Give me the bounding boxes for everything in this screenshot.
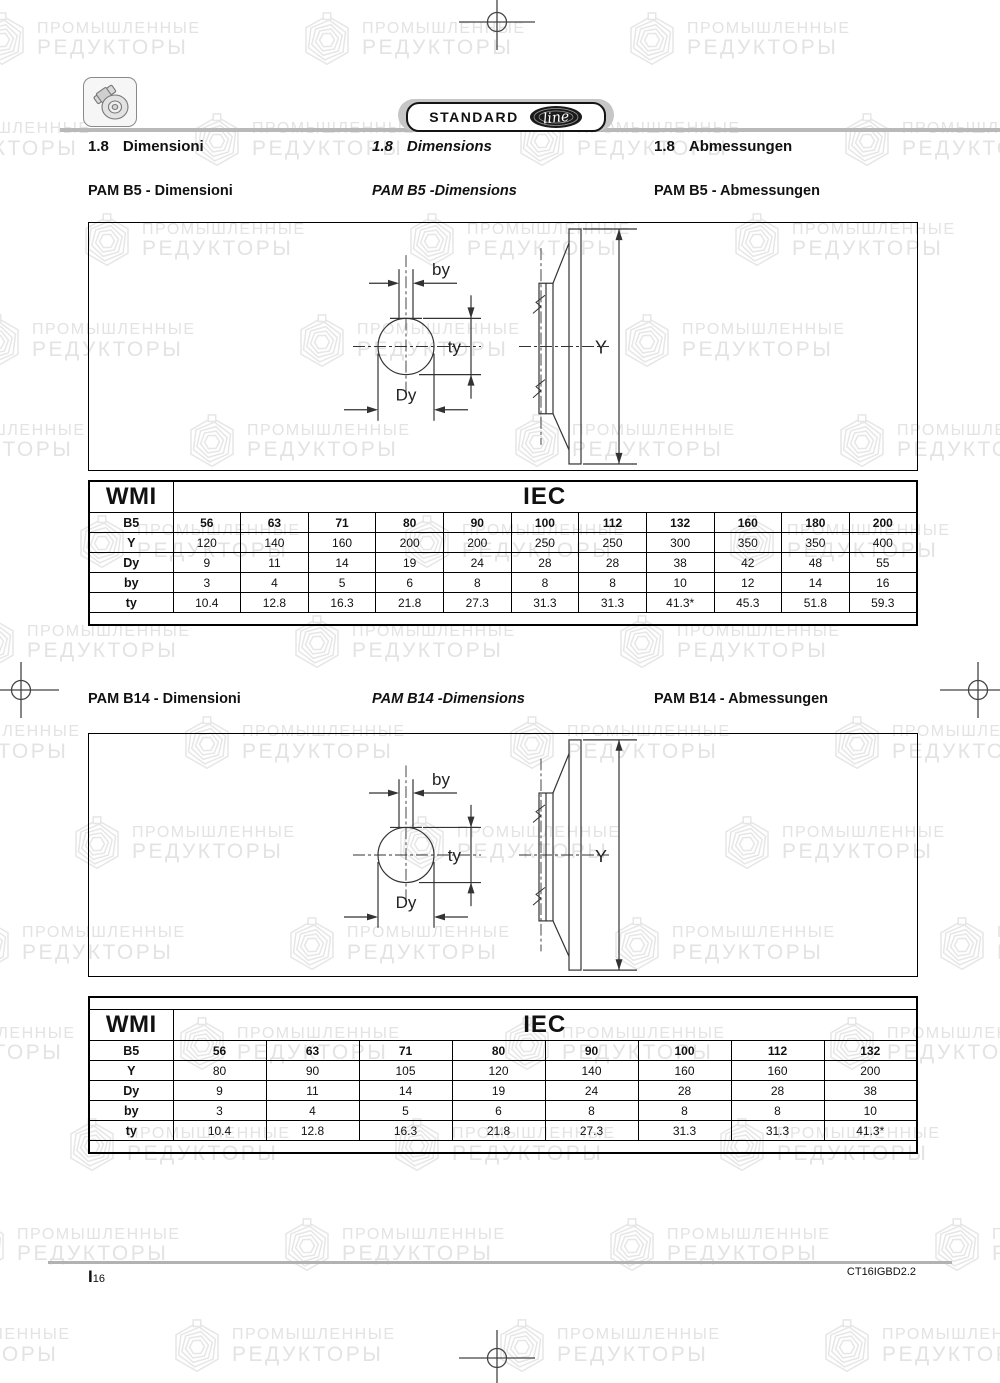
value-cell: 31.3	[511, 593, 579, 613]
row-label: ty	[89, 593, 173, 613]
watermark-line1: ПРОМЫШЛЕННЫЕ	[667, 1227, 831, 1244]
value-cell: 38	[824, 1081, 917, 1101]
row-label: Dy	[89, 1081, 173, 1101]
dim-label-by: by	[432, 260, 450, 279]
hexagon-swirl-icon	[299, 12, 355, 68]
size-cell: 112	[731, 1041, 824, 1061]
hexagon-swirl-icon	[0, 314, 25, 370]
flange-drawing: by ty Dy Y	[89, 223, 917, 470]
size-cell: 71	[359, 1041, 452, 1061]
table-row: ty10.412.816.321.827.331.331.341.3*45.35…	[89, 593, 917, 613]
value-cell: 8	[731, 1101, 824, 1121]
value-cell: 55	[849, 553, 917, 573]
value-cell: 350	[714, 533, 782, 553]
watermark-line1: ПРОМЫШЛЕННЫЕ	[37, 21, 201, 38]
value-cell: 24	[444, 553, 512, 573]
value-cell: 105	[359, 1061, 452, 1081]
watermark: ПРОМЫШЛЕННЫЕРЕДУКТОРЫ	[0, 414, 86, 470]
size-cell: 56	[173, 1041, 266, 1061]
table-band	[89, 997, 917, 1010]
value-cell: 160	[638, 1061, 731, 1081]
value-cell: 200	[824, 1061, 917, 1081]
size-cell: 71	[308, 513, 376, 533]
dim-label-ty: ty	[448, 337, 462, 356]
value-cell: 6	[376, 573, 444, 593]
value-cell: 350	[782, 533, 850, 553]
value-cell: 200	[444, 533, 512, 553]
dim-label-y: Y	[595, 337, 607, 357]
pam-b5-figure: by ty Dy Y	[88, 222, 918, 471]
dim-label-y: Y	[595, 846, 607, 866]
value-cell: 9	[173, 553, 241, 573]
brand-logo	[83, 77, 137, 127]
watermark-line2: РЕДУКТОРЫ	[902, 138, 1000, 160]
registration-mark-icon	[457, 0, 537, 54]
table-band	[89, 1141, 917, 1154]
watermark-line2: РЕДУКТОРЫ	[0, 741, 81, 763]
value-cell: 300	[646, 533, 714, 553]
size-cell: 90	[545, 1041, 638, 1061]
value-cell: 120	[173, 533, 241, 553]
value-cell: 42	[714, 553, 782, 573]
value-cell: 28	[579, 553, 647, 573]
size-cell: 200	[849, 513, 917, 533]
size-cell: 63	[266, 1041, 359, 1061]
hexagon-swirl-icon	[0, 1218, 10, 1274]
value-cell: 27.3	[444, 593, 512, 613]
size-cell: 160	[714, 513, 782, 533]
heading-dimensions: 1.8Dimensions	[372, 138, 492, 155]
value-cell: 4	[241, 573, 309, 593]
table-row: Dy911141924282838	[89, 1081, 917, 1101]
value-cell: 4	[266, 1101, 359, 1121]
size-cell: 132	[824, 1041, 917, 1061]
size-cell: 100	[638, 1041, 731, 1061]
value-cell: 19	[376, 553, 444, 573]
badge-line-label: line	[542, 109, 570, 128]
value-cell: 160	[308, 533, 376, 553]
watermark-line1: ПРОМЫШЛЕННЫЕ	[677, 624, 841, 641]
caption-pam-b14-it: PAM B14 - Dimensioni	[88, 691, 241, 707]
watermark: ПРОМЫШЛЕННЫЕРЕДУКТОРЫ	[0, 113, 91, 169]
watermark-line2: РЕДУКТОРЫ	[37, 37, 201, 59]
value-cell: 16	[849, 573, 917, 593]
watermark: ПРОМЫШЛЕННЫЕРЕДУКТОРЫ	[169, 1319, 396, 1375]
table-row: by345688810	[89, 1101, 917, 1121]
badge-standard-label: STANDARD	[429, 109, 519, 125]
watermark-line1: ПРОМЫШЛЕННЫЕ	[352, 624, 516, 641]
table-row: Y8090105120140160160200	[89, 1061, 917, 1081]
value-cell: 5	[308, 573, 376, 593]
hexagon-swirl-icon	[929, 1218, 985, 1274]
heading-abmessungen: 1.8Abmessungen	[654, 138, 792, 155]
table-header-row: WMIIEC	[89, 1010, 917, 1041]
size-cell: 80	[376, 513, 444, 533]
watermark-line2: РЕДУКТОРЫ	[0, 138, 91, 160]
size-cell: 56	[173, 513, 241, 533]
watermark-line2: РЕДУКТОРЫ	[687, 37, 851, 59]
value-cell: 8	[444, 573, 512, 593]
watermark-line1: ПРОМЫШЛЕННЫЕ	[992, 1227, 1000, 1244]
row-label: by	[89, 573, 173, 593]
value-cell: 31.3	[579, 593, 647, 613]
value-cell: 5	[359, 1101, 452, 1121]
row-label: by	[89, 1101, 173, 1121]
worm-gear-icon	[88, 82, 132, 122]
watermark: ПРОМЫШЛЕННЫЕРЕДУКТОРЫ	[279, 1218, 506, 1274]
table-header-row: WMIIEC	[89, 481, 917, 513]
registration-mark-icon	[938, 658, 1000, 722]
value-cell: 90	[266, 1061, 359, 1081]
hexagon-swirl-icon	[279, 1218, 335, 1274]
value-cell: 21.8	[452, 1121, 545, 1141]
value-cell: 250	[511, 533, 579, 553]
value-cell: 28	[731, 1081, 824, 1101]
watermark-line2: РЕДУКТОРЫ	[557, 1344, 721, 1366]
caption-pam-b5-en: PAM B5 -Dimensions	[372, 183, 517, 199]
dim-label-by: by	[432, 770, 451, 789]
watermark-line2: РЕДУКТОРЫ	[352, 640, 516, 662]
size-cell: 90	[444, 513, 512, 533]
value-cell: 12	[714, 573, 782, 593]
value-cell: 140	[545, 1061, 638, 1081]
watermark-line2: РЕДУКТОРЫ	[232, 1344, 396, 1366]
pam-b5-table: WMIIECB55663718090100112132160180200Y120…	[88, 480, 918, 626]
value-cell: 38	[646, 553, 714, 573]
value-cell: 31.3	[731, 1121, 824, 1141]
hexagon-swirl-icon	[624, 12, 680, 68]
value-cell: 80	[173, 1061, 266, 1081]
watermark: ПРОМЫШЛЕННЫЕРЕДУКТОРЫ	[624, 12, 851, 68]
value-cell: 11	[266, 1081, 359, 1101]
hexagon-swirl-icon	[0, 917, 15, 973]
standard-cell: IEC	[173, 481, 917, 513]
watermark-line1: ПРОМЫШЛЕННЫЕ	[232, 1327, 396, 1344]
value-cell: 160	[731, 1061, 824, 1081]
value-cell: 28	[638, 1081, 731, 1101]
size-cell: 180	[782, 513, 850, 533]
size-cell: 63	[241, 513, 309, 533]
pam-b14-figure: by ty Dy Y	[88, 733, 918, 977]
watermark: ПРОМЫШЛЕННЫЕРЕДУКТОРЫ	[0, 1319, 71, 1375]
value-cell: 10.4	[173, 593, 241, 613]
value-cell: 3	[173, 573, 241, 593]
caption-pam-b14-de: PAM B14 - Abmessungen	[654, 691, 828, 707]
hexagon-swirl-icon	[819, 1319, 875, 1375]
caption-pam-b5-it: PAM B5 - Dimensioni	[88, 183, 233, 199]
pam-b14-table: WMIIECB55663718090100112132Y809010512014…	[88, 996, 918, 1154]
value-cell: 41.3*	[824, 1121, 917, 1141]
watermark-line1: ПРОМЫШЛЕННЫЕ	[0, 1026, 76, 1043]
row-label: B5	[89, 513, 173, 533]
value-cell: 31.3	[638, 1121, 731, 1141]
watermark: ПРОМЫШЛЕННЫЕРЕДУКТОРЫ	[929, 1218, 1000, 1274]
table-row: by345688810121416	[89, 573, 917, 593]
watermark-line2: РЕДУКТОРЫ	[0, 1042, 76, 1064]
document-code: CT16IGBD2.2	[716, 1266, 916, 1278]
row-label: B5	[89, 1041, 173, 1061]
size-cell: 80	[452, 1041, 545, 1061]
watermark-line1: ПРОМЫШЛЕННЫЕ	[0, 1327, 71, 1344]
value-cell: 10	[824, 1101, 917, 1121]
value-cell: 48	[782, 553, 850, 573]
row-label: ty	[89, 1121, 173, 1141]
watermark-line1: ПРОМЫШЛЕННЫЕ	[687, 21, 851, 38]
value-cell: 250	[579, 533, 647, 553]
watermark-line1: ПРОМЫШЛЕННЫЕ	[0, 724, 81, 741]
watermark: ПРОМЫШЛЕННЫЕРЕДУКТОРЫ	[0, 12, 201, 68]
watermark: ПРОМЫШЛЕННЫЕРЕДУКТОРЫ	[839, 113, 1000, 169]
value-cell: 21.8	[376, 593, 444, 613]
value-cell: 14	[308, 553, 376, 573]
value-cell: 19	[452, 1081, 545, 1101]
standard-cell: IEC	[173, 1010, 917, 1041]
hexagon-swirl-icon	[839, 113, 895, 169]
value-cell: 3	[173, 1101, 266, 1121]
row-label: Y	[89, 1061, 173, 1081]
brand-cell: WMI	[89, 1010, 173, 1041]
standard-line-badge: STANDARD line	[406, 102, 606, 132]
value-cell: 140	[241, 533, 309, 553]
flange-drawing: by ty Dy Y	[89, 734, 917, 976]
size-cell: 100	[511, 513, 579, 533]
hexagon-swirl-icon	[169, 1319, 225, 1375]
watermark-line2: РЕДУКТОРЫ	[677, 640, 841, 662]
watermark-line1: ПРОМЫШЛЕННЫЕ	[27, 624, 191, 641]
catalog-page: ПРОМЫШЛЕННЫЕРЕДУКТОРЫПРОМЫШЛЕННЫЕРЕДУКТО…	[0, 0, 1000, 1383]
watermark-line1: ПРОМЫШЛЕННЫЕ	[342, 1227, 506, 1244]
value-cell: 12.8	[241, 593, 309, 613]
hexagon-swirl-icon	[604, 1218, 660, 1274]
size-row: B55663718090100112132	[89, 1041, 917, 1061]
pam-b14-table-wrap: WMIIECB55663718090100112132Y809010512014…	[88, 996, 918, 1154]
watermark-line1: ПРОМЫШЛЕННЫЕ	[17, 1227, 181, 1244]
value-cell: 11	[241, 553, 309, 573]
value-cell: 14	[359, 1081, 452, 1101]
value-cell: 24	[545, 1081, 638, 1101]
value-cell: 6	[452, 1101, 545, 1121]
dim-label-ty: ty	[448, 846, 462, 865]
caption-pam-b14-en: PAM B14 -Dimensions	[372, 691, 525, 707]
watermark-line1: ПРОМЫШЛЕННЫЕ	[882, 1327, 1000, 1344]
row-label: Y	[89, 533, 173, 553]
table-band	[89, 613, 917, 626]
value-cell: 41.3*	[646, 593, 714, 613]
watermark: ПРОМЫШЛЕННЫЕРЕДУКТОРЫ	[819, 1319, 1000, 1375]
size-cell: 112	[579, 513, 647, 533]
heading-dimensioni: 1.8Dimensioni	[88, 138, 204, 155]
watermark: ПРОМЫШЛЕННЫЕРЕДУКТОРЫ	[0, 1218, 181, 1274]
value-cell: 16.3	[308, 593, 376, 613]
size-cell: 132	[646, 513, 714, 533]
watermark-line2: РЕДУКТОРЫ	[0, 439, 86, 461]
dim-label-dy: Dy	[396, 893, 417, 912]
value-cell: 10	[646, 573, 714, 593]
value-cell: 59.3	[849, 593, 917, 613]
value-cell: 120	[452, 1061, 545, 1081]
value-cell: 27.3	[545, 1121, 638, 1141]
page-reference: I16	[88, 1267, 105, 1287]
watermark: ПРОМЫШЛЕННЫЕРЕДУКТОРЫ	[934, 917, 1000, 973]
value-cell: 28	[511, 553, 579, 573]
table-row: Dy911141924282838424855	[89, 553, 917, 573]
value-cell: 8	[545, 1101, 638, 1121]
value-cell: 10.4	[173, 1121, 266, 1141]
watermark-line1: ПРОМЫШЛЕННЫЕ	[557, 1327, 721, 1344]
caption-pam-b5-de: PAM B5 - Abmessungen	[654, 183, 820, 199]
value-cell: 45.3	[714, 593, 782, 613]
value-cell: 12.8	[266, 1121, 359, 1141]
value-cell: 200	[376, 533, 444, 553]
row-label: Dy	[89, 553, 173, 573]
pam-b5-table-wrap: WMIIECB55663718090100112132160180200Y120…	[88, 480, 918, 626]
value-cell: 400	[849, 533, 917, 553]
value-cell: 14	[782, 573, 850, 593]
value-cell: 16.3	[359, 1121, 452, 1141]
line-logo-icon: line	[529, 105, 583, 129]
dim-label-dy: Dy	[396, 386, 417, 405]
value-cell: 8	[638, 1101, 731, 1121]
size-row: B55663718090100112132160180200	[89, 513, 917, 533]
watermark: ПРОМЫШЛЕННЫЕРЕДУКТОРЫ	[0, 716, 81, 772]
brand-cell: WMI	[89, 481, 173, 513]
hexagon-swirl-icon	[934, 917, 990, 973]
value-cell: 8	[579, 573, 647, 593]
watermark: ПРОМЫШЛЕННЫЕРЕДУКТОРЫ	[0, 1017, 76, 1073]
value-cell: 51.8	[782, 593, 850, 613]
value-cell: 8	[511, 573, 579, 593]
registration-mark-icon	[457, 1326, 537, 1383]
value-cell: 9	[173, 1081, 266, 1101]
watermark-line2: РЕДУКТОРЫ	[0, 1344, 71, 1366]
table-row: ty10.412.816.321.827.331.331.341.3*	[89, 1121, 917, 1141]
watermark-line2: РЕДУКТОРЫ	[882, 1344, 1000, 1366]
watermark-line2: РЕДУКТОРЫ	[992, 1243, 1000, 1265]
hexagon-swirl-icon	[0, 12, 30, 68]
registration-mark-icon	[0, 658, 61, 722]
watermark-line1: ПРОМЫШЛЕННЫЕ	[0, 423, 86, 440]
table-row: Y120140160200200250250300350350400	[89, 533, 917, 553]
footer-rule	[48, 1261, 952, 1264]
